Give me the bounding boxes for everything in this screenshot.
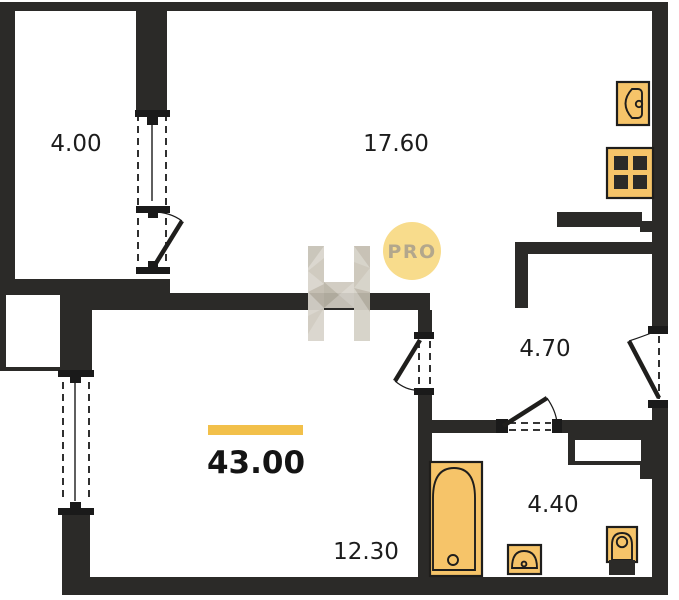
balcony-door [136,212,182,274]
washbasin-icon [508,545,541,574]
floor-plan-drawing: PRO 4.00 17.60 4.70 4.40 12.30 43.00 [0,0,679,600]
wall-balcony-bottom [0,279,170,295]
wall-bedroom-divider-upper [418,310,432,334]
floor-plan: PRO 4.00 17.60 4.70 4.40 12.30 43.00 [0,0,679,600]
door-leaf [395,340,420,381]
hallway-area-label: 4.70 [519,336,570,362]
wall-exterior-box-bottom [0,367,63,371]
wall-left-upper [0,2,15,295]
entrance-door [629,326,668,408]
kitchen-sink-icon [617,82,649,125]
wall-top [0,2,668,11]
door-sill [136,267,170,274]
pro-badge-label: PRO [387,241,436,263]
door-leaf [629,341,659,398]
wall-balcony-divider [136,10,167,113]
window-cap [58,370,94,377]
door-sill [648,400,668,408]
window-post [70,502,81,509]
wall-bathroom-duct-column [640,433,656,479]
wall-bedroom-top [60,293,430,310]
total-area-label: 43.00 [207,445,305,481]
window-post [147,117,158,125]
door-leaf [503,398,547,426]
window-post [148,213,158,218]
bathroom-area-label: 4.40 [527,492,578,518]
balcony-window [135,110,170,218]
door-jamb [414,332,434,339]
room-labels: 4.00 17.60 4.70 4.40 12.30 [50,131,578,565]
door-post [148,261,158,267]
wall-bottom [62,577,668,595]
stove-icon [607,148,653,198]
wall-bedroom-left-upper [60,295,92,377]
bedroom-window [58,370,94,515]
living-kitchen-area-label: 17.60 [363,131,429,157]
wall-bathroom-north-left [432,420,496,433]
window-cap [58,508,94,515]
bedroom-area-label: 12.30 [333,539,399,565]
wall-right-upper [652,10,668,327]
wall-kitchen-duct-bar [557,212,642,227]
window-post [70,376,81,383]
bathroom-duct-inner [575,440,641,461]
wall-hall-top [515,242,657,254]
toilet-icon [607,527,637,575]
total-area-block: 43.00 [207,425,305,481]
door-swing-arc [629,331,656,341]
wall-exterior-box-left [0,295,6,371]
bathroom-door [496,398,562,433]
h-logo-watermark [308,246,370,341]
door-leaf [153,221,182,268]
balcony-area-label: 4.00 [50,131,101,157]
bedroom-door [395,332,434,395]
pro-badge: PRO [383,222,441,280]
door-jamb [414,388,434,395]
bathtub-icon [430,462,482,576]
window-cap [135,110,170,117]
accent-bar [208,425,303,435]
wall-bathroom-north-right [560,420,658,433]
